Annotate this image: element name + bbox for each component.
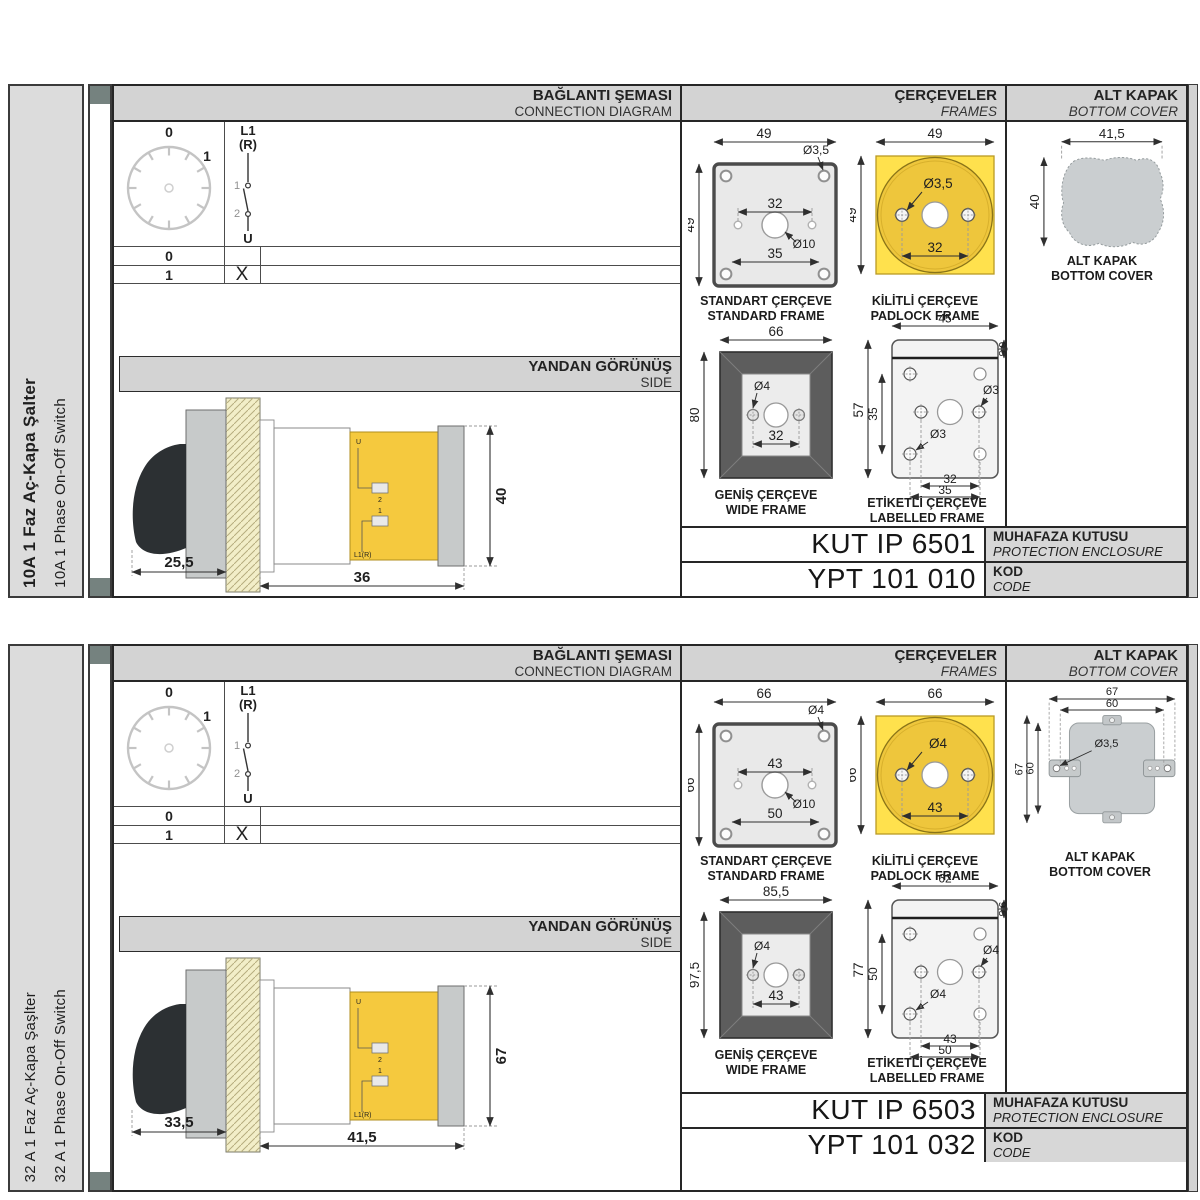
header-connection-en: CONNECTION DIAGRAM: [114, 104, 680, 119]
labelled-frame-drawing: 62 9,5 77 50 Ø4 Ø4 43 50: [850, 874, 1008, 1060]
index-square-top: [90, 86, 110, 104]
dim-hole: Ø3,5: [923, 176, 952, 191]
header-frames-en: FRAMES: [682, 104, 1005, 119]
dim-height: 66: [688, 777, 697, 792]
dim-inner-height: 50: [866, 967, 880, 981]
position-row-1: 1 X: [114, 825, 680, 844]
header-connection-tr: BAĞLANTI ŞEMASI: [114, 646, 680, 664]
dim-width: 49: [927, 126, 942, 141]
labelled-frame-drawing: 45 6,5 57 35 Ø3 Ø3 32 35: [850, 314, 1008, 500]
terminal-u: U: [356, 439, 361, 446]
bottom-cover-drawing: 67 60 67 60 Ø3,5: [1012, 686, 1188, 846]
switch-dial-diagram: 0 1: [114, 122, 224, 246]
caption-tr: STANDART ÇERÇEVE: [684, 854, 848, 869]
dim-height: 77: [851, 962, 866, 977]
dim-hole-spacing: 32: [767, 196, 782, 211]
header-cover-en: BOTTOM COVER: [1007, 104, 1186, 119]
caption-tr: GENİŞ ÇERÇEVE: [684, 1048, 848, 1063]
contact-2-label: 2: [234, 768, 240, 780]
dim-height: 97,5: [690, 962, 702, 988]
caption-en: LABELLED FRAME: [842, 511, 1012, 526]
code-label-tr: KOD: [993, 564, 1186, 580]
position-label: 1: [114, 266, 224, 284]
bottom-cover-drawing: 41,5 40: [1017, 126, 1187, 252]
standard-frame-drawing: 66 Ø4 66 43 Ø10 50: [688, 684, 844, 852]
header-frames-en: FRAMES: [682, 664, 1005, 679]
terminal-u-label: U: [243, 231, 252, 246]
index-strip: [88, 84, 112, 598]
header-frames-tr: ÇERÇEVELER: [682, 86, 1005, 104]
contact-2-label: 2: [234, 208, 240, 220]
caption-tr: GENİŞ ÇERÇEVE: [684, 488, 848, 503]
index-strip: [88, 644, 112, 1192]
position-row-0: 0: [114, 246, 680, 264]
dim-spacing-2: 50: [938, 1043, 952, 1057]
dim-hole-spacing: 32: [927, 240, 942, 255]
datasheet-panel: BAĞLANTI ŞEMASI CONNECTION DIAGRAM ÇERÇE…: [112, 644, 1188, 1192]
header-cover-tr: ALT KAPAK: [1007, 86, 1186, 104]
caption-wide-frame: GENİŞ ÇERÇEVE WIDE FRAME: [684, 1048, 848, 1077]
dim-spacing-2: 35: [938, 483, 952, 497]
enclosure-code: KUT IP 6501: [680, 528, 976, 561]
contact-1-label: 1: [234, 180, 240, 192]
dim-width: 41,5: [1099, 126, 1125, 141]
wide-frame-drawing: 85,5 97,5 Ø4 43: [690, 886, 846, 1044]
product-title-tr: 32 A 1 Faz Aç-Kapa Şaşlter: [22, 992, 39, 1182]
caption-bottom-cover: ALT KAPAK BOTTOM COVER: [1017, 254, 1187, 283]
enclosure-label: MUHAFAZA KUTUSU PROTECTION ENCLOSURE: [984, 1094, 1186, 1127]
header-cover-tr: ALT KAPAK: [1007, 646, 1186, 664]
header-connection-en: CONNECTION DIAGRAM: [114, 664, 680, 679]
product-title-en: 32 A 1 Phase On-Off Switch: [52, 989, 69, 1182]
index-square-bottom: [90, 1172, 110, 1190]
header-side-tr: YANDAN GÖRÜNÜŞ: [120, 357, 680, 375]
caption-standard-frame: STANDART ÇERÇEVE STANDARD FRAME: [684, 294, 848, 323]
dim-hole: Ø4: [754, 379, 770, 393]
dim-knob: 33,5: [164, 1114, 193, 1131]
panel-hatch: [226, 398, 260, 592]
product-title-tr: 10A 1 Faz Aç-Kapa Şalter: [20, 378, 40, 588]
enclosure-label-en: PROTECTION ENCLOSURE: [993, 545, 1186, 559]
switch-body: [274, 988, 350, 1124]
dim-lower-spacing: 50: [767, 806, 782, 821]
terminal-l1-label: L1: [240, 123, 255, 138]
dim-hole-bottom: Ø3: [930, 427, 946, 441]
enclosure-row: KUT IP 6503 MUHAFAZA KUTUSU PROTECTION E…: [680, 1092, 1186, 1127]
product-sidebar: 32 A 1 Faz Aç-Kapa Şaşlter 32 A 1 Phase …: [8, 644, 84, 1192]
dim-width: 66: [927, 686, 942, 701]
caption-tr: STANDART ÇERÇEVE: [684, 294, 848, 309]
switch-knob: [133, 444, 186, 554]
dim-hole: Ø4: [929, 736, 948, 751]
padlock-frame-drawing: 49 49 Ø3,5 32: [850, 124, 1000, 292]
code-row: YPT 101 010 KOD CODE: [680, 561, 1186, 596]
terminal-2: 2: [378, 1057, 382, 1064]
header-side-en: SIDE: [120, 935, 680, 950]
terminal-l1r: L1(R): [354, 1112, 372, 1119]
terminal-l1-label: L1: [240, 683, 255, 698]
terminal-u-label: U: [243, 791, 252, 806]
dim-hole-right: Ø3: [983, 383, 999, 397]
datasheet-panel: BAĞLANTI ŞEMASI CONNECTION DIAGRAM ÇERÇE…: [112, 84, 1188, 598]
header-bottom-cover: ALT KAPAK BOTTOM COVER: [1007, 646, 1186, 682]
dim-inner-height: 35: [866, 407, 880, 421]
header-frames: ÇERÇEVELER FRAMES: [682, 646, 1007, 682]
caption-tr: KİLİTLİ ÇERÇEVE: [844, 854, 1006, 869]
dim-depth: 40: [493, 488, 510, 505]
page-edge-strip: [1188, 84, 1198, 598]
dial-position-0: 0: [165, 124, 173, 140]
code-label-en: CODE: [993, 1146, 1186, 1160]
contact-mark: X: [224, 266, 260, 283]
header-connection-diagram: BAĞLANTI ŞEMASI CONNECTION DIAGRAM: [114, 646, 682, 682]
code-rows: KUT IP 6503 MUHAFAZA KUTUSU PROTECTION E…: [680, 1092, 1186, 1162]
dim-width: 85,5: [763, 886, 789, 899]
dial-ticks: [129, 708, 209, 788]
dim-hole-spacing: 43: [927, 800, 942, 815]
dim-hole-right: Ø4: [983, 943, 999, 957]
dial-ticks: [129, 148, 209, 228]
caption-en: LABELLED FRAME: [842, 1071, 1012, 1086]
header-cover-en: BOTTOM COVER: [1007, 664, 1186, 679]
caption-wide-frame: GENİŞ ÇERÇEVE WIDE FRAME: [684, 488, 848, 517]
caption-labelled-frame: ETİKETLİ ÇERÇEVE LABELLED FRAME: [842, 1056, 1012, 1085]
caption-tr: ALT KAPAK: [1017, 254, 1187, 269]
enclosure-label-tr: MUHAFAZA KUTUSU: [993, 529, 1186, 545]
dim-hole-spacing: 43: [768, 988, 783, 1003]
contact-1-label: 1: [234, 740, 240, 752]
wide-frame-drawing: 66 80 Ø4 32: [690, 326, 846, 484]
side-view-drawing: U 2 1 L1(R) 67 33,5 41,5: [122, 956, 552, 1156]
dim-width-inner: 60: [1106, 698, 1118, 710]
dim-hole: Ø3,5: [1094, 738, 1118, 750]
product-title-en: 10A 1 Phase On-Off Switch: [52, 398, 69, 588]
enclosure-label-tr: MUHAFAZA KUTUSU: [993, 1095, 1186, 1111]
dim-body: 36: [354, 569, 371, 586]
dim-height: 49: [850, 207, 859, 222]
dim-width: 45: [938, 314, 952, 326]
position-label: 0: [114, 807, 224, 825]
dim-height: 49: [688, 217, 697, 232]
enclosure-code: KUT IP 6503: [680, 1094, 976, 1127]
caption-labelled-frame: ETİKETLİ ÇERÇEVE LABELLED FRAME: [842, 496, 1012, 525]
dim-body: 41,5: [347, 1129, 376, 1146]
dim-height: 40: [1027, 194, 1042, 209]
dim-strip: 6,5: [996, 342, 1008, 357]
header-side-view: YANDAN GÖRÜNÜŞ SIDE: [119, 916, 680, 952]
switch-body: [274, 428, 350, 564]
position-row-0: 0: [114, 806, 680, 824]
terminal-r-label: (R): [239, 697, 257, 712]
dim-width: 66: [768, 326, 783, 339]
terminal-block: [350, 432, 438, 560]
caption-bottom-cover: ALT KAPAK BOTTOM COVER: [1012, 850, 1188, 879]
terminal-u: U: [356, 999, 361, 1006]
dial-position-1: 1: [203, 148, 211, 164]
code-label-tr: KOD: [993, 1130, 1186, 1146]
caption-en: WIDE FRAME: [684, 503, 848, 518]
dim-corner-hole: Ø3,5: [803, 143, 829, 157]
panel-hatch: [226, 958, 260, 1152]
dim-width: 49: [756, 126, 771, 141]
terminal-2: 2: [378, 497, 382, 504]
terminal-l1r: L1(R): [354, 552, 372, 559]
enclosure-label-en: PROTECTION ENCLOSURE: [993, 1111, 1186, 1125]
product-section-10a: 10A 1 Faz Aç-Kapa Şalter 10A 1 Phase On-…: [0, 84, 1200, 598]
page-edge-strip: [1188, 644, 1198, 1192]
side-view-drawing: U 2 1 L1(R) 40 25,5 36: [122, 396, 552, 596]
dim-height: 66: [850, 767, 859, 782]
dim-knob: 25,5: [164, 554, 193, 571]
dim-hole-spacing: 43: [767, 756, 782, 771]
dim-hole-spacing: 32: [768, 428, 783, 443]
column-divider: [680, 86, 682, 596]
code-label: KOD CODE: [984, 1129, 1186, 1162]
dim-depth: 67: [493, 1048, 510, 1065]
index-square-bottom: [90, 578, 110, 596]
dim-width-outer: 67: [1106, 686, 1118, 698]
dim-height: 57: [851, 402, 866, 417]
dim-height: 80: [690, 407, 702, 422]
terminal-r-label: (R): [239, 137, 257, 152]
dim-center-hole: Ø10: [793, 237, 816, 251]
header-frames-tr: ÇERÇEVELER: [682, 646, 1005, 664]
terminal-1: 1: [378, 1068, 382, 1075]
caption-en: BOTTOM COVER: [1012, 865, 1188, 880]
caption-en: WIDE FRAME: [684, 1063, 848, 1078]
position-row-1: 1 X: [114, 265, 680, 284]
dim-width: 62: [938, 874, 952, 886]
header-frames: ÇERÇEVELER FRAMES: [682, 86, 1007, 122]
dial-position-1: 1: [203, 708, 211, 724]
contact-mark: X: [224, 826, 260, 843]
code-label: KOD CODE: [984, 563, 1186, 596]
dial-position-0: 0: [165, 684, 173, 700]
index-square-top: [90, 646, 110, 664]
header-connection-tr: BAĞLANTI ŞEMASI: [114, 86, 680, 104]
caption-tr: KİLİTLİ ÇERÇEVE: [844, 294, 1006, 309]
code-label-en: CODE: [993, 580, 1186, 594]
caption-en: STANDARD FRAME: [684, 869, 848, 884]
caption-en: BOTTOM COVER: [1017, 269, 1187, 284]
dim-center-hole: Ø10: [793, 797, 816, 811]
product-section-32a: 32 A 1 Faz Aç-Kapa Şaşlter 32 A 1 Phase …: [0, 644, 1200, 1192]
code-rows: KUT IP 6501 MUHAFAZA KUTUSU PROTECTION E…: [680, 526, 1186, 596]
caption-tr: ETİKETLİ ÇERÇEVE: [842, 1056, 1012, 1071]
code-row: YPT 101 032 KOD CODE: [680, 1127, 1186, 1162]
switch-knob: [133, 1004, 186, 1114]
enclosure-label: MUHAFAZA KUTUSU PROTECTION ENCLOSURE: [984, 528, 1186, 561]
caption-tr: ALT KAPAK: [1012, 850, 1188, 865]
product-code: YPT 101 032: [680, 1129, 976, 1162]
product-sidebar: 10A 1 Faz Aç-Kapa Şalter 10A 1 Phase On-…: [8, 84, 84, 598]
terminal-1: 1: [378, 508, 382, 515]
header-connection-diagram: BAĞLANTI ŞEMASI CONNECTION DIAGRAM: [114, 86, 682, 122]
terminal-block: [350, 992, 438, 1120]
header-bottom-cover: ALT KAPAK BOTTOM COVER: [1007, 86, 1186, 122]
padlock-frame-drawing: 66 66 Ø4 43: [850, 684, 1000, 852]
position-label: 1: [114, 826, 224, 844]
standard-frame-drawing: 49 Ø3,5 49 32 Ø10 35: [688, 124, 844, 292]
dim-hole: Ø4: [754, 939, 770, 953]
caption-en: STANDARD FRAME: [684, 309, 848, 324]
enclosure-row: KUT IP 6501 MUHAFAZA KUTUSU PROTECTION E…: [680, 526, 1186, 561]
header-side-tr: YANDAN GÖRÜNÜŞ: [120, 917, 680, 935]
dim-hole-bottom: Ø4: [930, 987, 946, 1001]
dim-width: 66: [756, 686, 771, 701]
caption-standard-frame: STANDART ÇERÇEVE STANDARD FRAME: [684, 854, 848, 883]
switch-dial-diagram: 0 1: [114, 682, 224, 806]
dim-lower-spacing: 35: [767, 246, 782, 261]
dim-corner-hole: Ø4: [808, 703, 824, 717]
position-label: 0: [114, 247, 224, 265]
header-side-en: SIDE: [120, 375, 680, 390]
header-side-view: YANDAN GÖRÜNÜŞ SIDE: [119, 356, 680, 392]
caption-tr: ETİKETLİ ÇERÇEVE: [842, 496, 1012, 511]
dim-strip: 9,5: [996, 902, 1008, 917]
product-code: YPT 101 010: [680, 563, 976, 596]
dim-height-inner: 60: [1024, 762, 1036, 774]
